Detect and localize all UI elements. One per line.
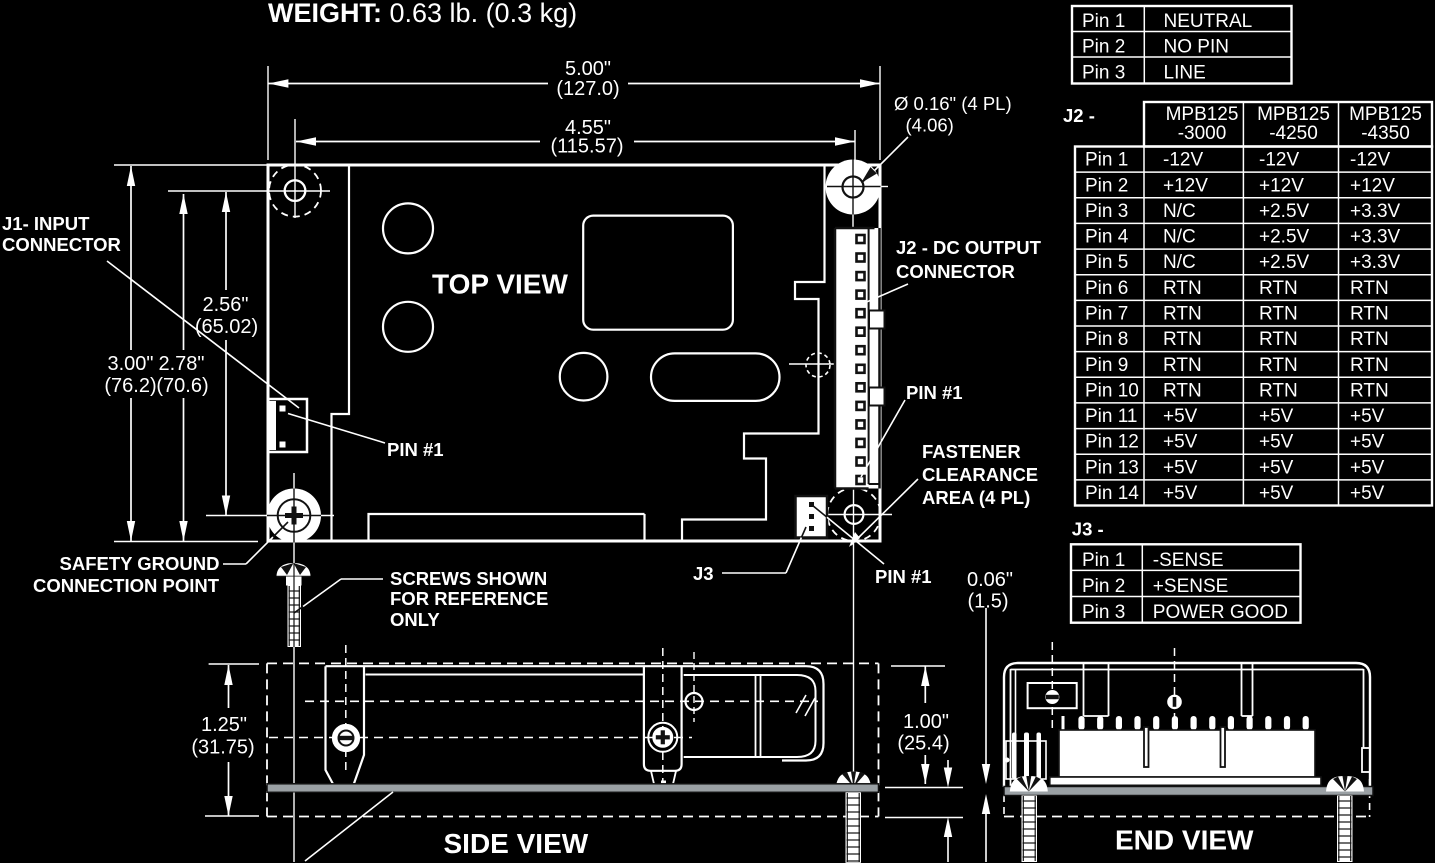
svg-text:Pin 1: Pin 1	[1082, 550, 1125, 571]
svg-text:+3.3V: +3.3V	[1350, 201, 1401, 222]
svg-text:RTN: RTN	[1350, 380, 1389, 401]
svg-text:+12V: +12V	[1163, 175, 1208, 196]
svg-text:J2 -: J2 -	[1063, 105, 1095, 126]
svg-text:+2.5V: +2.5V	[1259, 227, 1310, 248]
svg-text:RTN: RTN	[1259, 380, 1298, 401]
svg-text:(4.06): (4.06)	[906, 115, 954, 136]
svg-text:RTN: RTN	[1259, 278, 1298, 299]
svg-text:+12V: +12V	[1350, 175, 1395, 196]
svg-text:RTN: RTN	[1259, 355, 1298, 376]
svg-text:TOP VIEW: TOP VIEW	[432, 269, 568, 300]
svg-text:Pin 2: Pin 2	[1082, 37, 1125, 58]
svg-text:1.00": 1.00"	[903, 711, 949, 733]
svg-text:MPB125: MPB125	[1257, 104, 1330, 125]
svg-text:+2.5V: +2.5V	[1259, 201, 1310, 222]
svg-text:Pin 2: Pin 2	[1085, 175, 1128, 196]
svg-text:(115.57): (115.57)	[550, 136, 623, 158]
svg-text:Pin 12: Pin 12	[1085, 432, 1139, 453]
svg-text:RTN: RTN	[1163, 303, 1202, 324]
svg-text:N/C: N/C	[1163, 252, 1196, 273]
svg-text:SIDE VIEW: SIDE VIEW	[444, 828, 589, 859]
svg-text:CLEARANCE: CLEARANCE	[922, 464, 1038, 485]
svg-text:+SENSE: +SENSE	[1153, 576, 1229, 597]
svg-text:Pin 2: Pin 2	[1082, 576, 1125, 597]
svg-text:(76.2): (76.2)	[104, 375, 156, 397]
svg-text:Pin 14: Pin 14	[1085, 483, 1139, 504]
svg-text:+5V: +5V	[1350, 483, 1385, 504]
svg-text:RTN: RTN	[1163, 380, 1202, 401]
svg-text:RTN: RTN	[1350, 278, 1389, 299]
svg-text:AREA (4 PL): AREA (4 PL)	[922, 487, 1030, 508]
svg-text:RTN: RTN	[1163, 329, 1202, 350]
svg-text:(31.75): (31.75)	[191, 737, 254, 759]
svg-text:ONLY: ONLY	[390, 609, 440, 630]
svg-text:Pin 4: Pin 4	[1085, 227, 1129, 248]
svg-text:Pin 11: Pin 11	[1085, 406, 1137, 427]
svg-text:J3 -: J3 -	[1072, 519, 1104, 540]
svg-text:NEUTRAL: NEUTRAL	[1164, 11, 1253, 32]
svg-text:-4250: -4250	[1269, 123, 1318, 144]
svg-text:+5V: +5V	[1350, 406, 1385, 427]
svg-text:SCREWS SHOWN: SCREWS SHOWN	[390, 568, 547, 589]
svg-text:3.00": 3.00"	[107, 353, 153, 375]
svg-text:Pin 5: Pin 5	[1085, 252, 1128, 273]
svg-text:(127.0): (127.0)	[556, 78, 619, 100]
svg-text:RTN: RTN	[1350, 303, 1389, 324]
svg-text:WEIGHT: 0.63 lb. (0.3 kg): WEIGHT: 0.63 lb. (0.3 kg)	[268, 0, 577, 28]
svg-text:+5V: +5V	[1350, 432, 1385, 453]
svg-text:PIN #1: PIN #1	[906, 382, 963, 403]
svg-text:RTN: RTN	[1259, 303, 1298, 324]
svg-text:2.78": 2.78"	[158, 353, 204, 375]
svg-text:(25.4): (25.4)	[897, 733, 949, 755]
svg-text:POWER GOOD: POWER GOOD	[1153, 602, 1288, 623]
svg-text:CONNECTOR: CONNECTOR	[896, 261, 1015, 282]
svg-text:+2.5V: +2.5V	[1259, 252, 1310, 273]
svg-text:5.00": 5.00"	[565, 58, 611, 80]
svg-text:+3.3V: +3.3V	[1350, 227, 1401, 248]
svg-text:Pin 13: Pin 13	[1085, 457, 1139, 478]
svg-text:+5V: +5V	[1163, 457, 1198, 478]
svg-text:Pin 6: Pin 6	[1085, 278, 1128, 299]
svg-text:Pin 3: Pin 3	[1085, 201, 1128, 222]
svg-text:N/C: N/C	[1163, 227, 1196, 248]
svg-text:END VIEW: END VIEW	[1115, 825, 1254, 856]
svg-text:-4350: -4350	[1361, 123, 1410, 144]
svg-text:PIN #1: PIN #1	[875, 566, 932, 587]
svg-text:+5V: +5V	[1259, 457, 1294, 478]
svg-text:Pin 7: Pin 7	[1085, 303, 1128, 324]
svg-text:1.25": 1.25"	[201, 714, 247, 736]
svg-text:Pin 3: Pin 3	[1082, 63, 1125, 84]
svg-text:FASTENER: FASTENER	[922, 441, 1021, 462]
svg-text:RTN: RTN	[1350, 355, 1389, 376]
svg-text:Pin 1: Pin 1	[1082, 11, 1125, 32]
svg-text:RTN: RTN	[1259, 329, 1298, 350]
svg-text:RTN: RTN	[1163, 355, 1202, 376]
svg-text:CONNECTION POINT: CONNECTION POINT	[33, 575, 220, 596]
svg-text:Pin 3: Pin 3	[1082, 602, 1125, 623]
svg-text:+5V: +5V	[1259, 406, 1294, 427]
svg-text:(1.5): (1.5)	[967, 591, 1008, 613]
svg-text:-12V: -12V	[1259, 150, 1299, 171]
svg-text:J2 - DC OUTPUT: J2 - DC OUTPUT	[896, 237, 1042, 258]
svg-text:Pin 9: Pin 9	[1085, 355, 1128, 376]
svg-text:J1- INPUT: J1- INPUT	[2, 213, 90, 234]
svg-text:SAFETY GROUND: SAFETY GROUND	[60, 553, 220, 574]
svg-text:PIN #1: PIN #1	[387, 439, 444, 460]
svg-text:2.56": 2.56"	[202, 294, 248, 316]
svg-text:+5V: +5V	[1259, 483, 1294, 504]
svg-text:+5V: +5V	[1350, 457, 1385, 478]
svg-text:(70.6): (70.6)	[156, 375, 208, 397]
svg-text:+5V: +5V	[1163, 406, 1198, 427]
svg-text:RTN: RTN	[1163, 278, 1202, 299]
svg-text:-12V: -12V	[1163, 150, 1203, 171]
svg-text:Pin 8: Pin 8	[1085, 329, 1128, 350]
svg-text:+5V: +5V	[1259, 432, 1294, 453]
svg-text:NO PIN: NO PIN	[1164, 37, 1229, 58]
svg-text:RTN: RTN	[1350, 329, 1389, 350]
svg-text:MPB125: MPB125	[1349, 104, 1422, 125]
svg-text:CONNECTOR: CONNECTOR	[2, 234, 121, 255]
svg-text:N/C: N/C	[1163, 201, 1196, 222]
svg-text:Pin 1: Pin 1	[1085, 150, 1128, 171]
svg-text:J3: J3	[693, 563, 714, 584]
svg-text:+5V: +5V	[1163, 432, 1198, 453]
svg-text:+3.3V: +3.3V	[1350, 252, 1401, 273]
svg-text:-SENSE: -SENSE	[1153, 550, 1224, 571]
svg-text:Pin 10: Pin 10	[1085, 380, 1139, 401]
svg-text:+5V: +5V	[1163, 483, 1198, 504]
svg-text:-12V: -12V	[1350, 150, 1390, 171]
svg-text:-3000: -3000	[1178, 123, 1227, 144]
svg-text:0.06": 0.06"	[967, 569, 1013, 591]
svg-text:LINE: LINE	[1164, 63, 1206, 84]
svg-text:MPB125: MPB125	[1166, 104, 1239, 125]
svg-text:FOR REFERENCE: FOR REFERENCE	[390, 588, 548, 609]
svg-text:+12V: +12V	[1259, 175, 1304, 196]
svg-text:Ø 0.16" (4 PL): Ø 0.16" (4 PL)	[894, 93, 1012, 114]
